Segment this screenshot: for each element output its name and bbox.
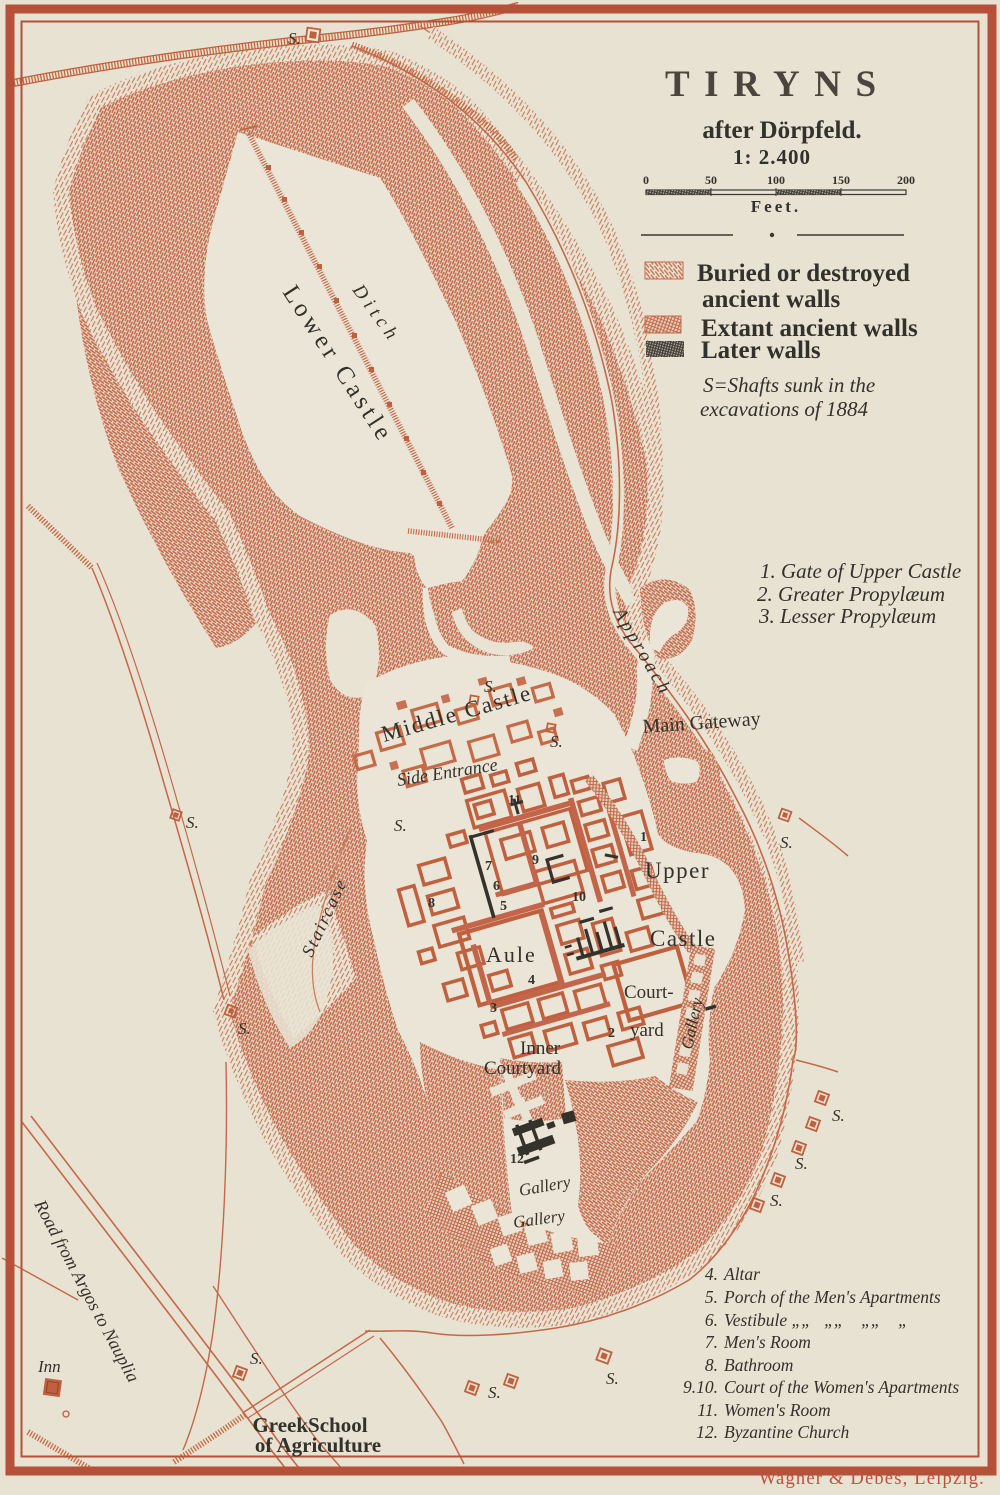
svg-text:Courtyard: Courtyard — [484, 1058, 562, 1079]
svg-text:7: 7 — [485, 859, 492, 874]
svg-text:5: 5 — [500, 899, 507, 914]
svg-text:S.: S. — [394, 816, 407, 835]
svg-text:yard: yard — [630, 1020, 664, 1041]
svg-text:8.: 8. — [705, 1355, 718, 1375]
svg-text:S.: S. — [832, 1106, 845, 1125]
svg-text:6.: 6. — [705, 1310, 718, 1330]
svg-text:Bathroom: Bathroom — [724, 1355, 793, 1375]
svg-text:Byzantine Church: Byzantine Church — [724, 1422, 849, 1442]
svg-text:10: 10 — [572, 890, 586, 905]
svg-text:9.10.: 9.10. — [683, 1377, 718, 1397]
svg-text:9: 9 — [532, 853, 539, 868]
svg-text:12.: 12. — [696, 1422, 718, 1442]
svg-text:S.: S. — [250, 1349, 263, 1368]
svg-text:11: 11 — [508, 793, 521, 808]
svg-text:1: 2.400: 1: 2.400 — [733, 145, 811, 169]
svg-text:ancient walls: ancient walls — [702, 286, 840, 313]
svg-text:Altar: Altar — [723, 1264, 760, 1284]
svg-text:Inner: Inner — [520, 1038, 561, 1059]
svg-text:S.: S. — [550, 732, 563, 751]
svg-text:6: 6 — [493, 879, 500, 894]
svg-text:S.: S. — [770, 1191, 783, 1210]
svg-text:of Agriculture: of Agriculture — [255, 1433, 381, 1457]
svg-text:Women's Room: Women's Room — [724, 1400, 831, 1420]
svg-text:2: 2 — [608, 1026, 615, 1041]
svg-text:12: 12 — [510, 1152, 524, 1167]
svg-text:S.: S. — [186, 813, 199, 832]
svg-text:Aule: Aule — [486, 942, 537, 967]
svg-text:4.: 4. — [705, 1264, 718, 1284]
svg-text:11.: 11. — [697, 1400, 718, 1420]
svg-text:Men's Room: Men's Room — [723, 1332, 811, 1352]
svg-text:Porch of the Men's Apartments: Porch of the Men's Apartments — [723, 1287, 941, 1307]
svg-text:8: 8 — [428, 896, 435, 911]
svg-text:3: 3 — [490, 1001, 497, 1016]
svg-text:TIRYNS: TIRYNS — [665, 64, 891, 105]
svg-text:Castle: Castle — [650, 926, 717, 951]
svg-text:50: 50 — [705, 173, 717, 187]
svg-text:Court-: Court- — [624, 982, 674, 1003]
svg-text:0: 0 — [643, 173, 649, 187]
svg-text:Later walls: Later walls — [701, 337, 821, 364]
svg-text:S.: S. — [238, 1019, 251, 1038]
svg-text:Feet.: Feet. — [751, 197, 801, 216]
svg-text:after Dörpfeld.: after Dörpfeld. — [702, 117, 861, 144]
svg-text:S=Shafts sunk in the: S=Shafts sunk in the — [703, 373, 875, 397]
svg-text:150: 150 — [832, 173, 850, 187]
svg-text:7.: 7. — [705, 1332, 718, 1352]
svg-text:S.: S. — [795, 1154, 808, 1173]
svg-text:4: 4 — [528, 973, 535, 988]
svg-text:3. Lesser Propylæum: 3. Lesser Propylæum — [758, 604, 936, 628]
svg-text:Buried or destroyed: Buried or destroyed — [697, 260, 910, 287]
svg-text:Inn: Inn — [37, 1357, 61, 1376]
svg-text:S.: S. — [780, 833, 793, 852]
svg-text:1. Gate of Upper Castle: 1. Gate of Upper Castle — [760, 559, 961, 583]
svg-text:excavations of 1884: excavations of 1884 — [700, 397, 868, 421]
svg-text:S.: S. — [288, 29, 301, 48]
svg-text:100: 100 — [767, 173, 785, 187]
svg-text:5.: 5. — [705, 1287, 718, 1307]
svg-text:Vestibule „„ „„ „„ „: Vestibule „„ „„ „„ „ — [724, 1310, 908, 1330]
svg-text:S.: S. — [488, 1383, 501, 1402]
svg-text:200: 200 — [897, 173, 915, 187]
svg-text:Wagner & Debes, Leipzig.: Wagner & Debes, Leipzig. — [759, 1469, 985, 1489]
svg-text:1: 1 — [640, 830, 647, 845]
svg-text:Court of the Women's Apartment: Court of the Women's Apartments — [724, 1377, 959, 1397]
svg-text:S.: S. — [606, 1369, 619, 1388]
svg-text:2. Greater Propylæum: 2. Greater Propylæum — [757, 582, 945, 606]
svg-text:Upper: Upper — [645, 858, 710, 883]
